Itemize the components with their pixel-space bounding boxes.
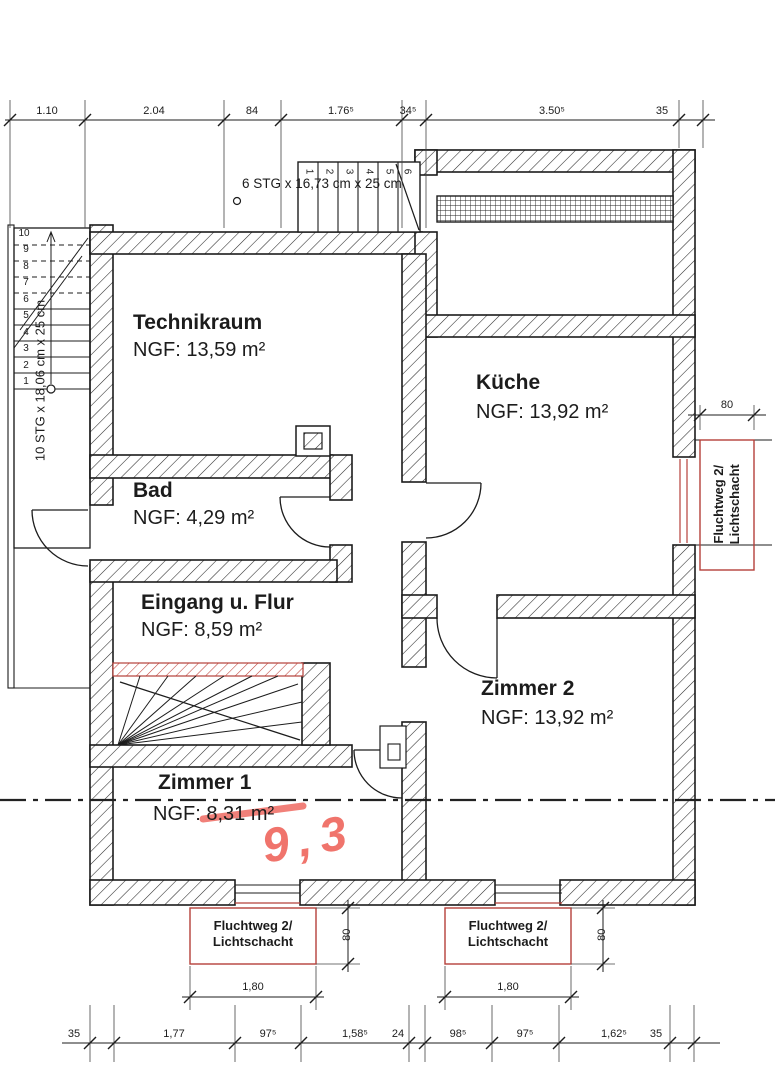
dim-bot-6: 98⁵ [450, 1029, 467, 1041]
kueche-door-arc [426, 483, 481, 538]
fluchtweg-label-bottom-right: Fluchtweg 2/ Lichtschacht [445, 918, 571, 951]
room-flur-area: NGF: 8,59 m² [141, 620, 262, 641]
left-step-6: 6 [20, 294, 32, 305]
dim-top-4: 1.76⁵ [328, 106, 354, 118]
zimmer2-door-arc [437, 618, 497, 678]
top-step-3: 3 [344, 166, 355, 178]
room-zimmer1-area: NGF: 8,31 m² [153, 804, 274, 825]
room-flur-name: Eingang u. Flur [141, 592, 294, 614]
room-kueche-name: Küche [476, 372, 540, 394]
dim-shaft2-depth: 80 [597, 917, 609, 953]
left-step-3: 3 [20, 343, 32, 354]
dim-top-1: 1.10 [36, 106, 57, 118]
room-bad-area: NGF: 4,29 m² [133, 508, 254, 529]
fluchtweg-br-line1: Fluchtweg 2/ [445, 918, 571, 934]
dim-bot-2: 1,77 [163, 1029, 184, 1041]
room-zimmer2-name: Zimmer 2 [481, 678, 574, 700]
left-step-7: 7 [20, 277, 32, 288]
fluchtweg-right-line1: Fluchtweg 2/ [711, 434, 727, 574]
room-bad-name: Bad [133, 480, 173, 502]
left-step-4: 4 [20, 327, 32, 338]
top-step-2: 2 [324, 166, 335, 178]
floor-plan: 1.10 2.04 84 1.76⁵ 34⁵ 3.50⁵ 35 35 1,77 … [0, 0, 775, 1080]
left-step-10: 10 [18, 228, 30, 239]
dim-bot-1: 35 [68, 1029, 80, 1041]
top-step-6: 6 [402, 166, 413, 178]
room-zimmer1-name: Zimmer 1 [158, 772, 251, 794]
chimney-block [296, 426, 330, 456]
dim-bot-3: 97⁵ [260, 1029, 277, 1041]
left-stair-label: 10 STG x 18,06 cm x 25 cm [33, 231, 48, 531]
fluchtweg-bl-line1: Fluchtweg 2/ [190, 918, 316, 934]
fluchtweg-label-bottom-left: Fluchtweg 2/ Lichtschacht [190, 918, 316, 951]
winder-stair [113, 663, 303, 745]
left-step-5: 5 [20, 310, 32, 321]
top-step-4: 4 [364, 166, 375, 178]
dim-bot-8: 1,62⁵ [601, 1029, 627, 1041]
left-step-9: 9 [20, 244, 32, 255]
bad-door-arc [280, 497, 330, 547]
dim-shaft1-width: 1,80 [242, 982, 263, 994]
dim-shaft2-width: 1,80 [497, 982, 518, 994]
top-step-1: 1 [304, 166, 315, 178]
room-technikraum-area: NGF: 13,59 m² [133, 340, 265, 361]
fluchtweg-label-right: Fluchtweg 2/ Lichtschacht [711, 434, 744, 574]
top-stair-label: 6 STG x 16,73 cm x 25 cm [242, 177, 402, 191]
dim-bot-5: 24 [392, 1029, 404, 1041]
winder-red-strip [113, 663, 303, 676]
plan-linework [0, 0, 775, 1080]
dim-top-3: 84 [246, 106, 258, 118]
room-technikraum-name: Technikraum [133, 312, 262, 334]
left-step-1: 1 [20, 376, 32, 387]
dim-bot-7: 97⁵ [517, 1029, 534, 1041]
dim-bot-4: 1,58⁵ [342, 1029, 368, 1041]
fluchtweg-bl-line2: Lichtschacht [190, 934, 316, 950]
dim-top-2: 2.04 [143, 106, 164, 118]
left-step-2: 2 [20, 360, 32, 371]
door-jamb-block [380, 726, 406, 768]
dim-top-5: 34⁵ [400, 106, 417, 118]
dim-shaft1-depth: 80 [342, 917, 354, 953]
dim-bot-9: 35 [650, 1029, 662, 1041]
dim-top-7: 35 [656, 106, 668, 118]
room-zimmer2-area: NGF: 13,92 m² [481, 708, 613, 729]
fluchtweg-br-line2: Lichtschacht [445, 934, 571, 950]
room-kueche-area: NGF: 13,92 m² [476, 402, 608, 423]
fluchtweg-right-line2: Lichtschacht [727, 434, 743, 574]
grating-band [437, 196, 673, 222]
dim-top-6: 3.50⁵ [539, 106, 565, 118]
left-step-8: 8 [20, 261, 32, 272]
top-step-5: 5 [384, 166, 395, 178]
dim-shaft-right-width: 80 [721, 400, 733, 412]
